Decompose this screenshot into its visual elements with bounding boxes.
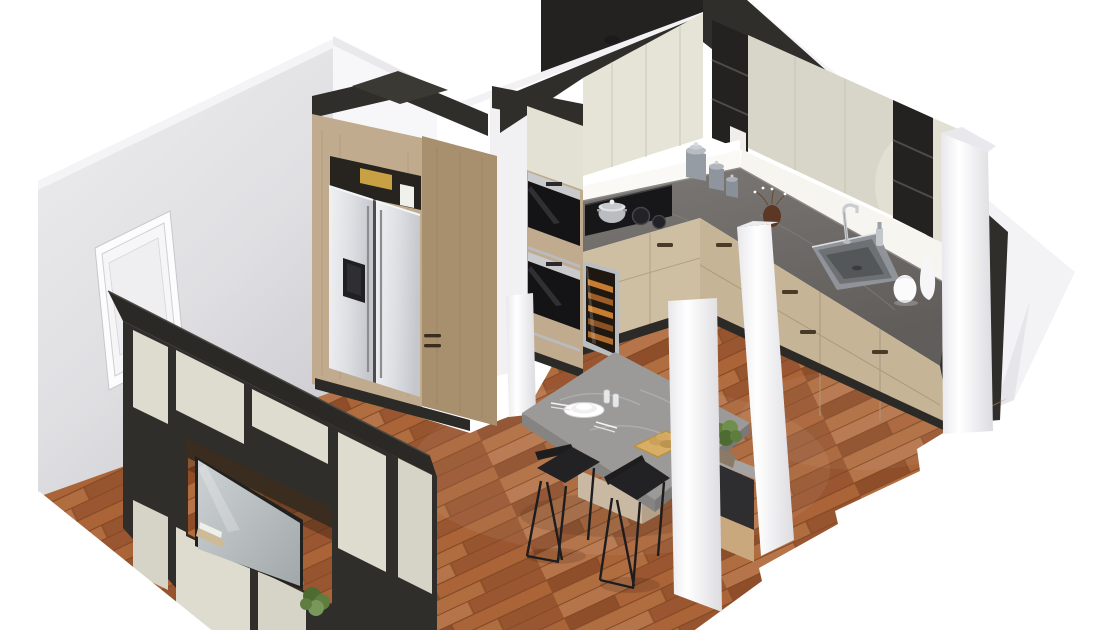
pillar-center-left (668, 298, 722, 612)
burner-icon (653, 216, 666, 229)
kitchen-3d-render (0, 0, 1120, 630)
render-viewport (0, 0, 1120, 630)
right-open-shelf (893, 100, 933, 238)
drawer-handle (800, 330, 816, 334)
pillar-small (506, 293, 536, 417)
wine-cooler (582, 261, 619, 360)
wall-panel (338, 432, 386, 572)
burner-icon (633, 208, 650, 225)
drawer-handle (872, 350, 888, 354)
refrigerator (329, 186, 420, 397)
ceiling-spotlight (604, 36, 620, 45)
cabinet-handle (424, 334, 441, 337)
niche-carton (400, 184, 414, 208)
pillar-right-wall (941, 127, 996, 434)
cabinet-handle (424, 344, 441, 347)
drawer-handle (716, 243, 732, 247)
drawer-handle (657, 243, 673, 247)
wall-panel (398, 458, 432, 594)
drawer-handle (782, 290, 798, 294)
